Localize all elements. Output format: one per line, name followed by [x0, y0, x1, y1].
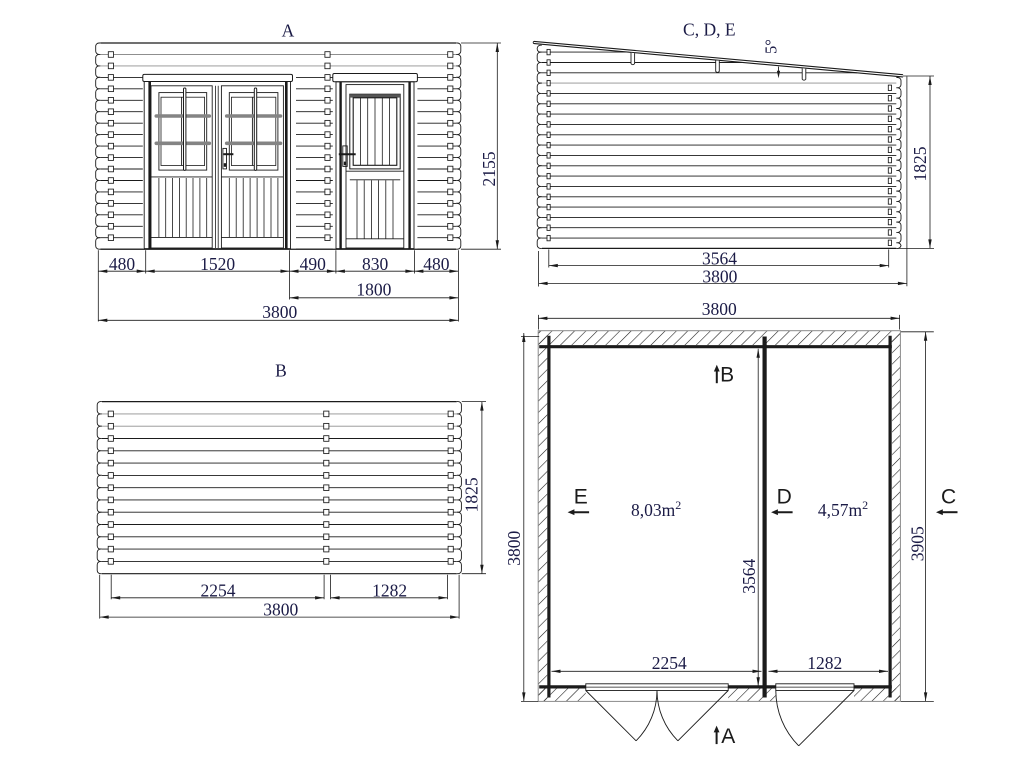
svg-text:1520: 1520: [200, 254, 235, 274]
svg-text:3800: 3800: [702, 266, 737, 286]
svg-text:C: C: [941, 485, 956, 508]
svg-text:1800: 1800: [356, 280, 391, 300]
svg-text:480: 480: [423, 254, 450, 274]
svg-text:3800: 3800: [702, 299, 737, 319]
svg-text:3800: 3800: [262, 302, 297, 322]
svg-text:3800: 3800: [504, 530, 524, 565]
svg-text:E: E: [574, 485, 588, 508]
svg-text:2254: 2254: [652, 653, 687, 673]
svg-text:3564: 3564: [739, 559, 759, 594]
svg-text:1282: 1282: [807, 653, 842, 673]
svg-text:8,03m2: 8,03m2: [631, 498, 681, 520]
svg-text:3564: 3564: [702, 248, 737, 268]
svg-text:5°: 5°: [762, 39, 781, 54]
svg-text:2254: 2254: [201, 580, 236, 600]
svg-text:1825: 1825: [910, 146, 930, 181]
svg-text:D: D: [777, 485, 792, 508]
svg-text:A: A: [282, 21, 295, 41]
svg-text:4,57m2: 4,57m2: [818, 498, 868, 520]
svg-text:1282: 1282: [372, 580, 407, 600]
svg-text:B: B: [720, 364, 734, 387]
svg-text:480: 480: [109, 254, 136, 274]
svg-text:3905: 3905: [908, 526, 928, 561]
svg-text:B: B: [275, 361, 287, 381]
svg-text:490: 490: [300, 254, 327, 274]
svg-text:A: A: [721, 725, 735, 748]
svg-text:C, D, E: C, D, E: [683, 20, 736, 40]
svg-text:830: 830: [362, 254, 389, 274]
svg-text:1825: 1825: [461, 477, 481, 512]
svg-text:2155: 2155: [479, 151, 499, 186]
svg-text:3800: 3800: [263, 600, 298, 620]
